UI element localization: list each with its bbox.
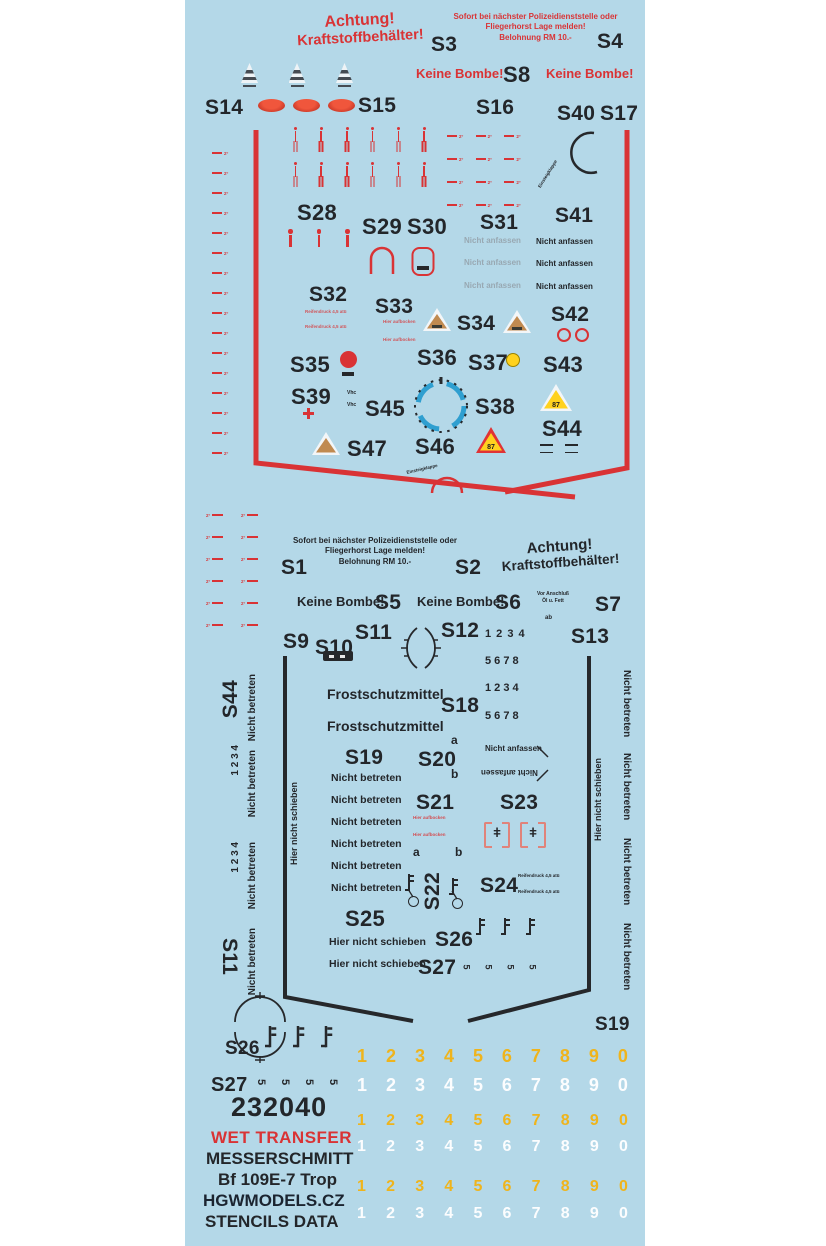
gauge-icon-3	[526, 918, 535, 935]
red-ring-icon-2	[575, 328, 589, 342]
stencil-label-s35: S35	[290, 352, 330, 378]
trim-dash	[212, 312, 222, 314]
trim-mark: 2°	[476, 149, 505, 169]
digit-column-2: 1 2 3 4	[230, 842, 241, 873]
stencil-label-s46: S46	[415, 434, 455, 460]
match-mark-icon	[370, 162, 375, 180]
circle-icon-s22-left	[408, 896, 419, 907]
rotated-s-icon-1: 5	[462, 964, 472, 969]
stencil-label-s44-top: S44	[542, 416, 582, 442]
gauge-icon-s22-left	[405, 874, 414, 891]
octane-number: 87	[540, 402, 572, 409]
stencil-digit: 6	[502, 1075, 513, 1096]
letter-a-2: a	[413, 845, 420, 859]
trim-mark: 2°	[447, 195, 476, 215]
z-mark: 2°	[241, 570, 258, 592]
rotated-s-icon-4: 5	[528, 964, 538, 969]
stencil-label-s8: S8	[503, 62, 531, 88]
trim-degree-text: 2°	[516, 180, 520, 185]
red-cap-disc-row	[258, 99, 355, 112]
fuel-filler-triangle-icon	[241, 63, 258, 83]
reward-line3: Belohnung RM 10.-	[453, 33, 618, 43]
trim-dash	[447, 181, 457, 183]
trim-dash	[504, 135, 514, 137]
trim-degree-text: 2°	[488, 134, 492, 139]
z-degree-text: 2°	[241, 513, 245, 518]
trim-dash	[504, 158, 514, 160]
stencil-digit: 2	[386, 1205, 396, 1223]
trim-degree-text: 2°	[516, 157, 520, 162]
oil-note-line2: Öl u. Fett	[535, 598, 571, 605]
trim-degree-text: 2°	[516, 134, 520, 139]
stencil-digit: 2	[386, 1178, 396, 1196]
bracket-top-s11-rotated	[235, 997, 285, 1022]
match-mark-icon	[422, 127, 427, 145]
z-degree-text: 2°	[241, 557, 245, 562]
red-bracket-icon-1: ǂ	[484, 822, 510, 848]
vhc-text-1: Vhc	[347, 390, 356, 396]
z-degree-text: 2°	[206, 535, 210, 540]
red-dot-icon	[340, 351, 357, 368]
z-degree-text: 2°	[241, 623, 245, 628]
stencil-label-s45: S45	[365, 396, 405, 422]
stencil-label-s5: S5	[375, 591, 401, 615]
tyre-pressure-red-1: Reifendruck 4,5 atü	[305, 309, 347, 314]
octane-triangle-white-border: 87	[540, 384, 572, 411]
circle-icon-s22-right	[452, 898, 463, 909]
stencil-digit: 4	[444, 1205, 454, 1223]
trim-dash	[212, 232, 222, 234]
z-degree-text: 2°	[241, 601, 245, 606]
decal-sheet-scan: Achtung! Kraftstoffbehälter! S3 Sofort b…	[0, 0, 826, 1246]
bracket-left-s12	[407, 628, 417, 668]
triangle-marking	[512, 327, 522, 330]
trim-degree-text: 2°	[224, 151, 228, 156]
z-degree-text: 2°	[241, 535, 245, 540]
stencil-digit-row-white-1: 1234567890	[357, 1075, 629, 1096]
triangle-marking	[432, 325, 442, 328]
z-degree-text: 2°	[206, 601, 210, 606]
nicht-anfassen-faded-2: Nicht anfassen	[464, 258, 521, 267]
gauge-icon-b1	[265, 1026, 276, 1047]
stencil-label-s31: S31	[480, 211, 518, 235]
trim-mark-grid: 2°2°2°2°2°2°2°2°2°2°2°2°	[447, 126, 533, 218]
stencil-label-s17: S17	[600, 102, 638, 126]
nicht-betreten-vert-r3: Nicht betreten	[621, 838, 632, 905]
match-mark-icon	[422, 162, 427, 180]
tan-triangle-icon-3	[312, 432, 340, 455]
stencil-digit: 9	[589, 1075, 600, 1096]
trim-dash	[212, 252, 222, 254]
match-mark-icon	[293, 162, 298, 180]
nicht-anfassen-bold-3: Nicht anfassen	[536, 282, 593, 291]
valve-symbol: ǂ	[484, 825, 510, 840]
match-mark-icon	[293, 127, 298, 145]
keine-bombe-black-1: Keine Bombe!	[297, 594, 384, 609]
blue-carrier-film-sheet: Achtung! Kraftstoffbehälter! S3 Sofort b…	[185, 0, 645, 1246]
stencil-digit: 0	[619, 1112, 629, 1130]
keine-bombe-top-1: Keine Bombe!	[416, 66, 503, 81]
stencil-digit: 1	[357, 1075, 368, 1096]
fuel-filler-triangle-icon	[289, 63, 306, 83]
trim-degree-text: 2°	[459, 157, 463, 162]
trim-degree-text: 2°	[516, 203, 520, 208]
stencil-digit: 7	[532, 1138, 542, 1156]
frostschutzmittel-2: Frostschutzmittel	[327, 718, 444, 734]
valve-symbol: ǂ	[520, 825, 546, 840]
red-bracket-icon-2: ǂ	[520, 822, 546, 848]
trim-degree-text: 2°	[224, 251, 228, 256]
stencil-digit: 1	[357, 1112, 367, 1130]
z-mark: 2°	[206, 504, 223, 526]
trim-degree-text: 2°	[224, 291, 228, 296]
stencil-digit: 8	[560, 1046, 571, 1067]
brand-website: HGWMODELS.CZ	[203, 1191, 345, 1211]
stencil-label-s11-vertical: S11	[217, 938, 241, 975]
rotated-s-icon-3: 5	[506, 964, 516, 969]
trim-degree-text: 2°	[224, 391, 228, 396]
trim-degree-text: 2°	[459, 180, 463, 185]
trim-mark: 2°	[212, 363, 228, 383]
stencil-digit: 7	[531, 1075, 542, 1096]
trim-mark: 2°	[212, 243, 228, 263]
trim-mark: 2°	[504, 172, 533, 192]
nicht-betreten-vert-r4: Nicht betreten	[621, 923, 632, 990]
trim-dash	[212, 332, 222, 334]
trim-degree-text: 2°	[459, 203, 463, 208]
z-mark: 2°	[241, 526, 258, 548]
letter-b-1: b	[451, 767, 458, 781]
stencil-digit: 6	[502, 1046, 513, 1067]
gauge-icon-s22-right	[449, 878, 458, 895]
i-mark-row	[288, 229, 350, 248]
aircraft-model: Bf 109E-7 Trop	[218, 1170, 337, 1190]
stencil-digit: 0	[619, 1205, 629, 1223]
black-curve-s41	[571, 133, 597, 173]
stencil-label-s37: S37	[468, 350, 508, 376]
z-mark: 2°	[241, 548, 258, 570]
trim-dash	[447, 135, 457, 137]
match-mark-icon	[345, 162, 350, 180]
stencil-digit: 2	[386, 1138, 396, 1156]
fuel-triangle-row	[241, 63, 353, 83]
stencil-digit: 5	[473, 1178, 483, 1196]
stencil-digit: 0	[618, 1046, 629, 1067]
trim-mark: 2°	[212, 343, 228, 363]
stencil-digit: 7	[532, 1205, 542, 1223]
z-dash	[212, 624, 223, 626]
stencil-digit: 4	[444, 1075, 455, 1096]
z-mark-column-2: 2°2°2°2°2°2°	[241, 504, 258, 636]
match-mark-icon	[319, 162, 324, 180]
aircraft-maker: MESSERSCHMITT	[206, 1149, 353, 1169]
trim-dash	[504, 181, 514, 183]
z-degree-text: 2°	[206, 513, 210, 518]
stencil-digit: 7	[532, 1178, 542, 1196]
trim-dash	[212, 372, 222, 374]
reward-line2: Fliegerhorst Lage melden!	[453, 22, 618, 32]
red-dot-caption-bar	[342, 372, 354, 376]
yellow-circle-icon	[506, 353, 520, 367]
dial-blue-arcs-s38	[418, 383, 464, 429]
trim-degree-text: 2°	[224, 231, 228, 236]
stencil-label-s26-bottom: S26	[225, 1038, 260, 1060]
stencil-digit: 1	[357, 1178, 367, 1196]
z-mark: 2°	[206, 570, 223, 592]
z-mark: 2°	[206, 526, 223, 548]
z-dash	[247, 558, 258, 560]
stencil-digit: 4	[444, 1046, 455, 1067]
trim-dash	[212, 352, 222, 354]
stencil-label-s15: S15	[358, 94, 396, 118]
z-dash	[247, 536, 258, 538]
stencil-label-s42: S42	[551, 303, 589, 327]
reward-line1: Sofort bei nächster Polizeidienststelle …	[285, 536, 465, 546]
nicht-anfassen-bold-1: Nicht anfassen	[536, 237, 593, 246]
trim-mark: 2°	[476, 126, 505, 146]
i-mark-icon	[345, 229, 350, 248]
stencil-digit: 2	[386, 1046, 397, 1067]
match-mark-row-2	[293, 162, 427, 180]
stencil-label-s34: S34	[457, 312, 495, 336]
stencil-digit: 3	[415, 1178, 425, 1196]
stencil-digit: 8	[560, 1075, 571, 1096]
bracket-right-s12	[425, 628, 435, 668]
stencil-label-s25: S25	[345, 906, 385, 932]
keine-bombe-black-2: Keine Bombe!	[417, 594, 504, 609]
stencil-digit: 1	[357, 1138, 367, 1156]
letter-a-1: a	[451, 733, 458, 747]
z-dash	[247, 602, 258, 604]
stencil-label-s7: S7	[595, 593, 621, 617]
z-degree-text: 2°	[241, 579, 245, 584]
stencil-digit-row-yellow-2: 1234567890	[357, 1112, 629, 1130]
stencil-label-s2: S2	[455, 556, 481, 580]
stencil-digit: 5	[473, 1205, 483, 1223]
trim-degree-text: 2°	[224, 331, 228, 336]
stencil-label-s24: S24	[480, 874, 518, 898]
match-mark-icon	[319, 127, 324, 145]
trim-degree-text: 2°	[224, 271, 228, 276]
nicht-anfassen-bold-2: Nicht anfassen	[536, 259, 593, 268]
stencil-digit: 6	[503, 1178, 513, 1196]
trim-marks-left-column: 2°2°2°2°2°2°2°2°2°2°2°2°2°2°2°2°	[212, 143, 228, 463]
nicht-anfassen-faded-1: Nicht anfassen	[464, 236, 521, 245]
vhc-text-2: Vhc	[347, 402, 356, 408]
nicht-betreten-vert-l2: Nicht betreten	[247, 750, 258, 817]
stencil-label-s41: S41	[555, 204, 593, 228]
octane-triangle-red-border: 87	[476, 427, 506, 453]
z-dash	[212, 536, 223, 538]
trim-mark: 2°	[212, 383, 228, 403]
trim-dash	[212, 192, 222, 194]
z-mark: 2°	[206, 614, 223, 636]
oil-note-ab: ab	[545, 615, 552, 621]
nicht-betreten-vert-l4: Nicht betreten	[247, 928, 258, 995]
digit-column-1: 1 2 3 4	[230, 745, 241, 776]
hier-nicht-schieben-vert-left: Hier nicht schieben	[289, 782, 299, 865]
gauge-icon-1	[476, 918, 485, 935]
nicht-anfassen-mid-flipped: Nicht anfassen	[481, 768, 538, 777]
nicht-betreten-row-6: Nicht betreten	[331, 882, 402, 894]
trim-degree-text: 2°	[224, 411, 228, 416]
stencil-label-s22-vertical: S22	[421, 872, 445, 910]
z-degree-text: 2°	[206, 579, 210, 584]
trim-dash	[212, 452, 222, 454]
stencil-label-s38: S38	[475, 394, 515, 420]
stencil-digit: 1	[357, 1205, 367, 1223]
stencil-label-s28: S28	[297, 200, 337, 226]
reward-line1: Sofort bei nächster Polizeidienststelle …	[453, 12, 618, 22]
stencil-digit: 5	[473, 1112, 483, 1130]
trim-mark: 2°	[504, 149, 533, 169]
trim-mark: 2°	[476, 172, 505, 192]
red-cap-disc-icon	[258, 99, 285, 112]
digit-row-5-8-a: 5 6 7 8	[485, 655, 519, 667]
nicht-anfassen-faded-3: Nicht anfassen	[464, 281, 521, 290]
stencil-label-s26-mid: S26	[435, 928, 473, 952]
stencil-label-s32: S32	[309, 283, 347, 307]
keine-bombe-top-2: Keine Bombe!	[546, 66, 633, 81]
trim-dash	[504, 204, 514, 206]
stencil-label-s6: S6	[495, 591, 521, 615]
stencil-label-s1: S1	[281, 556, 307, 580]
stencil-label-s47: S47	[347, 436, 387, 462]
trim-dash	[447, 204, 457, 206]
trim-degree-text: 2°	[224, 311, 228, 316]
trim-dash	[212, 392, 222, 394]
stencil-digit: 3	[415, 1205, 425, 1223]
i-mark-icon	[288, 229, 293, 248]
rotated-s-icon-b4: 5	[327, 1079, 339, 1085]
stencil-digit: 6	[503, 1138, 513, 1156]
stencil-digit: 6	[503, 1205, 513, 1223]
stencil-digit: 2	[386, 1112, 396, 1130]
stencil-digit: 9	[590, 1112, 600, 1130]
trim-dash	[212, 212, 222, 214]
oil-grease-note: Vor Anschluß Öl u. Fett	[535, 591, 571, 605]
gauge-icon-2	[501, 918, 510, 935]
stencil-label-s19: S19	[345, 746, 383, 770]
match-mark-icon	[370, 127, 375, 145]
stencil-label-s16: S16	[476, 96, 514, 120]
trim-dash	[212, 172, 222, 174]
stencil-digit-row-yellow-1: 1234567890	[357, 1046, 629, 1067]
trim-mark: 2°	[212, 183, 228, 203]
z-mark: 2°	[206, 548, 223, 570]
red-bottle-outline-s30	[413, 248, 434, 275]
stencil-digit: 4	[444, 1138, 454, 1156]
product-code: 232040	[231, 1092, 327, 1123]
stencil-digit: 9	[589, 1046, 600, 1067]
stencil-digit: 0	[618, 1075, 629, 1096]
reward-notice-top: Sofort bei nächster Polizeidienststelle …	[453, 12, 618, 43]
stencil-digit: 3	[415, 1112, 425, 1130]
black-plate-icon-s10	[323, 651, 353, 661]
stencil-label-s39: S39	[291, 384, 331, 410]
i-mark-icon	[317, 229, 322, 248]
jack-here-red-1: Hier aufbocken	[383, 319, 416, 324]
jack-here-small-2: Hier aufbocken	[413, 832, 446, 837]
stencil-digit: 8	[561, 1138, 571, 1156]
oil-note-line1: Vor Anschluß	[535, 591, 571, 598]
match-mark-icon	[396, 127, 401, 145]
match-mark-row-1	[293, 127, 427, 145]
stencil-label-s43: S43	[543, 352, 583, 378]
nicht-betreten-vert-l3: Nicht betreten	[247, 842, 258, 909]
stencil-digit: 3	[415, 1075, 426, 1096]
stencil-digit: 9	[590, 1205, 600, 1223]
trim-mark: 2°	[212, 263, 228, 283]
stencil-digit: 8	[561, 1112, 571, 1130]
stencil-label-s19-bottom: S19	[595, 1014, 630, 1036]
stencil-label-s21: S21	[416, 791, 454, 815]
stencil-label-s11: S11	[355, 621, 392, 645]
z-dash	[212, 558, 223, 560]
gauge-icon-b3	[321, 1026, 332, 1047]
stencil-digit-row-white-2: 1234567890	[357, 1138, 629, 1156]
stencil-digit: 9	[590, 1138, 600, 1156]
stencil-label-s18: S18	[441, 694, 479, 718]
trim-mark: 2°	[447, 172, 476, 192]
trim-degree-text: 2°	[224, 371, 228, 376]
stencil-digit: 3	[415, 1138, 425, 1156]
stencil-label-s4: S4	[597, 30, 623, 54]
trim-degree-text: 2°	[459, 134, 463, 139]
trim-dash	[212, 432, 222, 434]
stencil-digit: 8	[561, 1205, 571, 1223]
trim-dash	[212, 152, 222, 154]
rotated-s-icon-b1: 5	[255, 1079, 267, 1085]
stencil-digit: 7	[532, 1112, 542, 1130]
tyre-pressure-red-2: Reifendruck 4,5 atü	[305, 324, 347, 329]
trim-degree-text: 2°	[224, 451, 228, 456]
z-dash	[212, 602, 223, 604]
stencil-label-s30: S30	[407, 214, 447, 240]
digit-row-1-4-b: 1 2 3 4	[485, 682, 519, 694]
stencil-digit: 6	[503, 1112, 513, 1130]
trim-mark: 2°	[212, 423, 228, 443]
rotated-s-icon-2: 5	[484, 964, 494, 969]
trim-degree-text: 2°	[224, 351, 228, 356]
z-dash	[247, 580, 258, 582]
z-degree-text: 2°	[206, 623, 210, 628]
small-double-bar-1	[540, 444, 553, 453]
nicht-betreten-row-5: Nicht betreten	[331, 860, 402, 872]
nicht-betreten-row-4: Nicht betreten	[331, 838, 402, 850]
trim-dash	[476, 204, 486, 206]
trim-dash	[476, 158, 486, 160]
z-mark: 2°	[241, 504, 258, 526]
hier-nicht-schieben-vert-right: Hier nicht schieben	[593, 758, 603, 841]
trim-degree-text: 2°	[224, 431, 228, 436]
stencil-label-s36: S36	[417, 345, 457, 371]
tan-triangle-icon-1	[423, 308, 451, 331]
stencil-digit-row-yellow-3: 1234567890	[357, 1178, 629, 1196]
z-mark: 2°	[241, 592, 258, 614]
small-double-bar-2	[565, 444, 578, 453]
red-cap-disc-icon	[328, 99, 355, 112]
red-cap-disc-icon	[293, 99, 320, 112]
trim-mark: 2°	[212, 303, 228, 323]
trim-dash	[476, 135, 486, 137]
trim-mark: 2°	[212, 163, 228, 183]
tyre-pressure-black-1: Reifendruck 4,5 atü	[518, 873, 560, 878]
trim-mark: 2°	[212, 323, 228, 343]
trim-degree-text: 2°	[488, 203, 492, 208]
trim-degree-text: 2°	[488, 157, 492, 162]
rotated-s-icon-b2: 5	[279, 1079, 291, 1085]
